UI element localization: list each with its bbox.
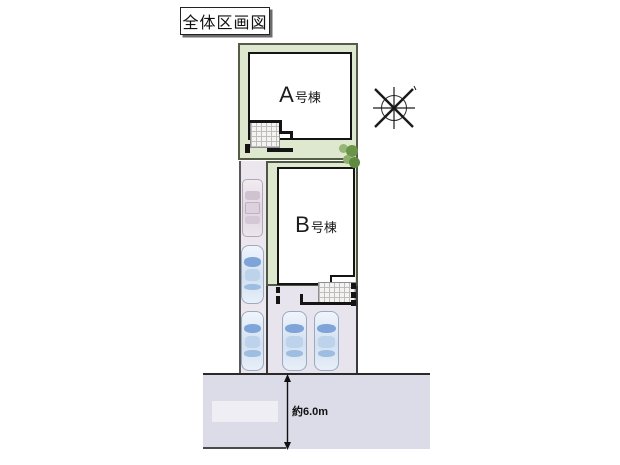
building-b-entry-step [300,302,353,305]
car-roof [318,336,335,348]
car-rear-window [245,216,260,223]
building-a-label: A号棟 [248,82,352,108]
building-b-gate-post [351,292,356,298]
building-a-step-edge [248,120,281,123]
building-a-letter: A [279,84,294,106]
building-b-gate-post [276,287,280,293]
car-windshield [285,324,304,334]
plan-title-text: 全体区画図 [182,9,267,33]
building-b-letter: B [295,214,310,236]
car-rear-window [286,350,304,357]
north-compass-icon [367,80,423,136]
road-faded-patch [212,401,278,422]
car-windshield [245,191,261,199]
building-a-suffix: 号棟 [295,86,321,104]
bush-icon [349,157,360,168]
car-windshield [317,324,336,334]
car-top-view-icon [282,311,307,371]
car-top-view-icon [242,179,263,237]
road-bottom-edge [203,447,286,449]
building-b-label: B号棟 [277,212,355,238]
building-a-step-edge [290,131,293,140]
building-a-gate-post [245,144,250,153]
building-b-suffix: 号棟 [311,216,337,234]
car-roof [245,202,259,213]
car-top-view-icon [314,311,339,371]
car-roof [286,336,303,348]
road-width-label: 約6.0m [292,403,328,419]
plan-title: 全体区画図 [180,7,270,35]
car-top-view-icon [241,311,264,371]
building-b-gate-post [276,296,280,304]
car-roof [245,336,261,348]
building-a-terrace-grid [250,121,280,148]
building-b-gate-post [351,300,356,306]
car-rear-window [318,350,336,357]
car-top-view-icon [241,245,264,304]
car-roof [245,269,261,281]
building-a-entry-step [267,148,293,152]
car-windshield [244,324,261,334]
car-windshield [244,257,261,267]
car-rear-window [244,284,260,291]
building-b-gate-post [351,283,356,289]
car-rear-window [244,350,260,357]
site-plan-image: 全体区画図 A号棟 B号棟 [0,0,620,465]
